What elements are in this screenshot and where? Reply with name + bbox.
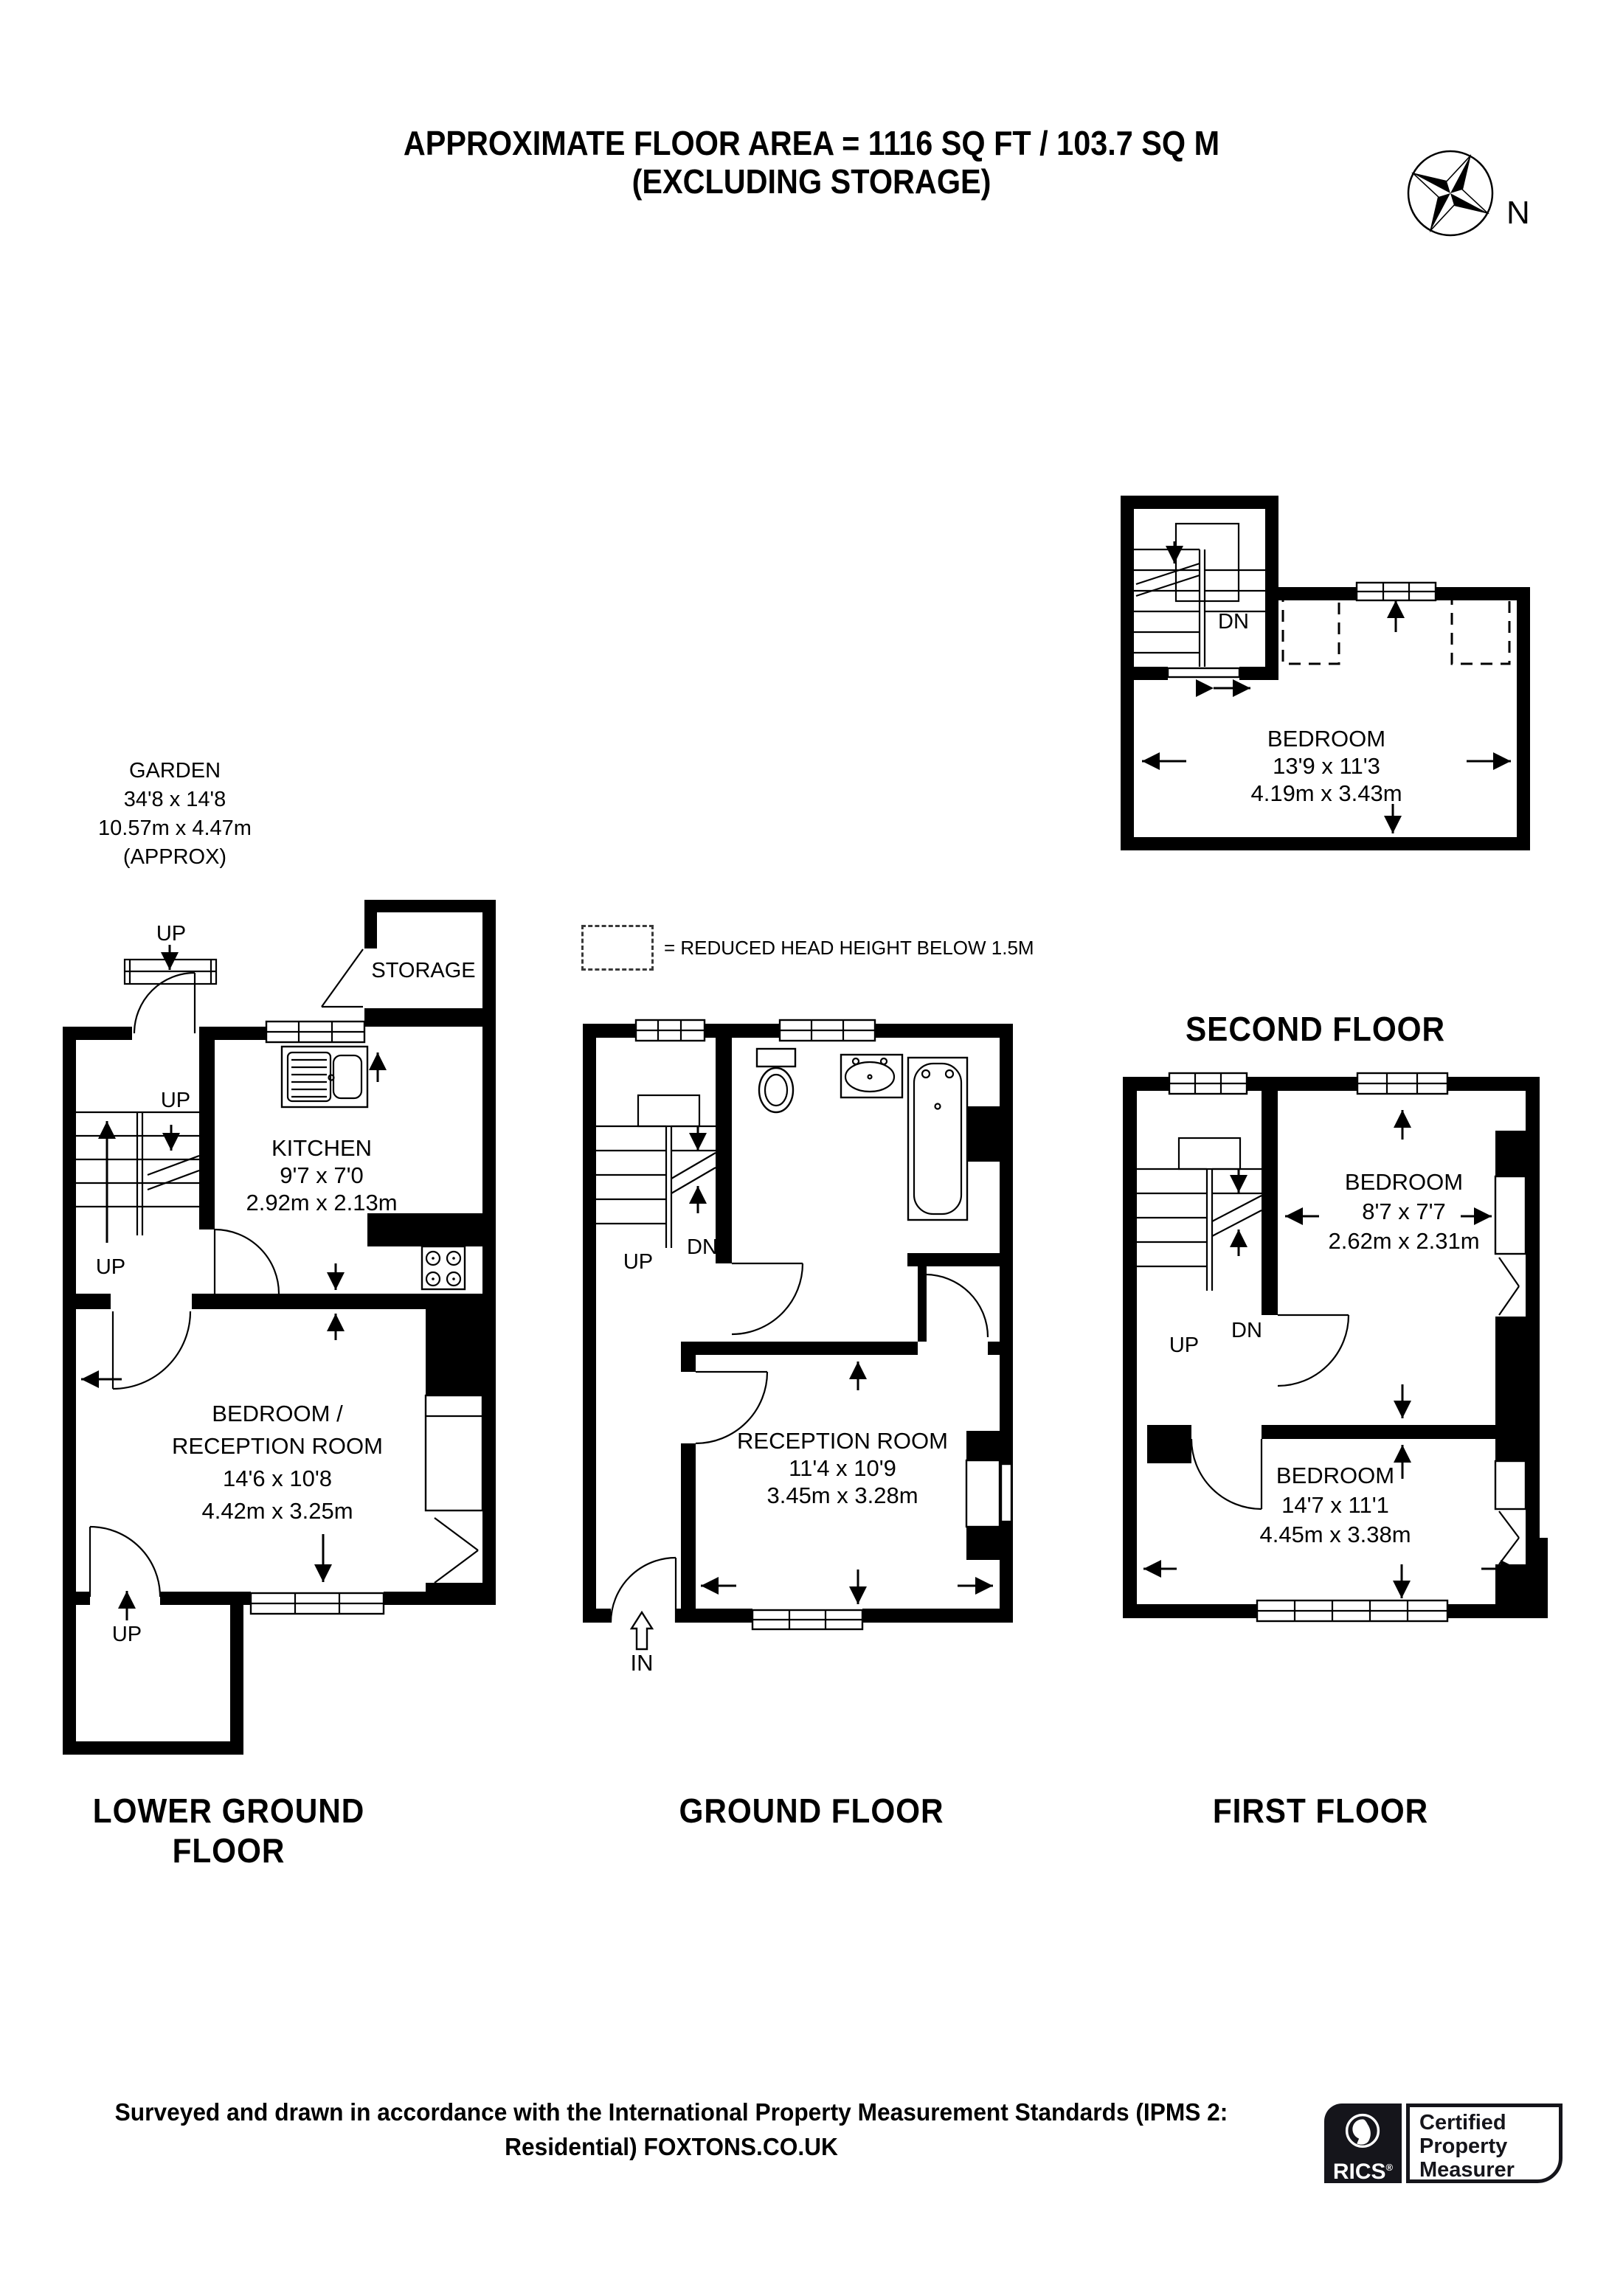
toilet	[757, 1049, 795, 1112]
rics-wordmark: RICS®	[1333, 2157, 1393, 2183]
first-floor-label: FIRST FLOOR	[1130, 1791, 1510, 1831]
room-name: BEDROOM	[1345, 1169, 1463, 1195]
room-dim-ft: 11'4 x 10'9	[789, 1455, 896, 1481]
bedroom-large-label: BEDROOM 14'7 x 11'1 4.45m x 3.38m	[1259, 1463, 1411, 1547]
room-dim-m: 3.45m x 3.28m	[766, 1482, 918, 1508]
room-dim-m: 4.45m x 3.38m	[1259, 1522, 1411, 1547]
inner-door	[925, 1274, 988, 1337]
stairs-up-down	[596, 1095, 716, 1248]
legend-text: = REDUCED HEAD HEIGHT BELOW 1.5M	[664, 937, 1034, 960]
bedroom-small-label: BEDROOM 8'7 x 7'7 2.62m x 2.31m	[1328, 1169, 1479, 1254]
front-door	[611, 1558, 676, 1623]
first-floor-plan: UP DN BEDROOM 8'7 x 7'7 2.62m x 2.31m BE…	[1114, 1066, 1593, 1811]
rics-cert-line2: Property	[1419, 2134, 1559, 2158]
entrance-in-label: IN	[631, 1650, 654, 1676]
reception-window	[752, 1610, 862, 1629]
rics-logo: RICS®	[1324, 2103, 1402, 2183]
built-in-closet	[426, 1395, 482, 1583]
garden-name: GARDEN	[42, 757, 308, 785]
compass-north-label: N	[1506, 195, 1530, 231]
stairs-up-label: UP	[623, 1250, 653, 1274]
bedroom-label: BEDROOM 13'9 x 11'3 4.19m x 3.43m	[1250, 726, 1402, 806]
rics-certification-badge: Certified Property Measurer	[1406, 2103, 1563, 2183]
rics-cert-line3: Measurer	[1419, 2158, 1559, 2182]
room-dim-m: 4.42m x 3.25m	[201, 1498, 353, 1524]
room-dim-ft: 14'7 x 11'1	[1281, 1492, 1389, 1518]
entrance-door	[134, 973, 195, 1033]
stairs-up-down	[1137, 1138, 1262, 1291]
entrance-in	[631, 1612, 652, 1649]
garden-label: GARDEN 34'8 x 14'8 10.57m x 4.47m (APPRO…	[42, 757, 308, 872]
room-dim-m: 4.19m x 3.43m	[1250, 780, 1402, 806]
room-name: KITCHEN	[271, 1135, 372, 1161]
excluding-storage-line: (EXCLUDING STORAGE)	[81, 162, 1542, 201]
stairs-dn-label: DN	[687, 1235, 718, 1259]
kitchen-label: KITCHEN 9'7 x 7'0 2.92m x 2.13m	[246, 1135, 397, 1215]
kitchen-door	[215, 1229, 279, 1294]
bedroom-reception-label: BEDROOM / RECEPTION ROOM 14'6 x 10'8 4.4…	[172, 1401, 383, 1524]
bedroom-small-window	[1357, 1073, 1447, 1094]
footer-note: Surveyed and drawn in accordance with th…	[69, 2095, 1273, 2164]
room-name-line2: RECEPTION ROOM	[172, 1433, 383, 1459]
bathtub	[908, 1058, 967, 1220]
entrance-up-label: UP	[156, 922, 186, 946]
hall-window	[636, 1020, 705, 1041]
reception-label: RECEPTION ROOM 11'4 x 10'9 3.45m x 3.28m	[737, 1428, 948, 1508]
stairs-dn-label: DN	[1218, 610, 1249, 634]
bedroom-large-door	[1191, 1439, 1262, 1509]
floor-area-line: APPROXIMATE FLOOR AREA = 1116 SQ FT / 10…	[81, 124, 1542, 162]
room-dim-ft: 13'9 x 11'3	[1273, 753, 1380, 779]
room-dim-ft: 14'6 x 10'8	[223, 1466, 332, 1491]
lower-ground-floor-label: LOWER GROUND FLOOR	[59, 1791, 398, 1870]
page-title: APPROXIMATE FLOOR AREA = 1116 SQ FT / 10…	[81, 124, 1542, 201]
garden-dim-ft: 34'8 x 14'8	[42, 785, 308, 814]
room-name-line1: BEDROOM /	[212, 1401, 343, 1426]
ground-floor-plan: UP DN	[568, 1018, 1055, 1811]
dashed-area-icon	[581, 925, 654, 971]
room-dim-ft: 8'7 x 7'7	[1362, 1199, 1446, 1224]
room-dim-m: 2.92m x 2.13m	[246, 1190, 397, 1215]
stairs-up	[76, 1112, 199, 1243]
room-name: BEDROOM	[1267, 726, 1385, 752]
bedroom-window	[251, 1593, 384, 1614]
stairs-down	[1134, 524, 1265, 677]
kitchen-hob	[422, 1246, 465, 1289]
footer-line1: Surveyed and drawn in accordance with th…	[69, 2095, 1273, 2129]
rics-lion-icon	[1324, 2103, 1402, 2155]
bathroom-door	[732, 1263, 803, 1334]
compass-rose-icon: N	[1394, 136, 1534, 262]
bathroom-window	[780, 1020, 875, 1041]
stairs-up-side-label: UP	[96, 1255, 125, 1279]
basin	[841, 1055, 902, 1097]
bedroom-large-window	[1257, 1600, 1447, 1621]
vault-up-label: UP	[112, 1623, 142, 1646]
vault-door	[90, 1527, 160, 1597]
storage-door	[322, 949, 363, 1007]
garden-note: (APPROX)	[42, 843, 308, 872]
ground-floor-label: GROUND FLOOR	[587, 1791, 1035, 1831]
room-name: RECEPTION ROOM	[737, 1428, 948, 1454]
kitchen-window	[266, 1022, 364, 1042]
storage-label: STORAGE	[371, 959, 475, 982]
lower-ground-floor-plan: UP STORAGE	[44, 896, 524, 1807]
reduced-head-height-legend: = REDUCED HEAD HEIGHT BELOW 1.5M	[581, 925, 1034, 971]
stairs-up-label: UP	[1169, 1333, 1199, 1357]
second-floor-label: SECOND FLOOR	[1124, 1009, 1508, 1049]
second-floor-plan: DN BEDROOM 13'9 x 11'3 4.19m x 3.43m	[1107, 481, 1549, 931]
room-dim-m: 2.62m x 2.31m	[1328, 1228, 1479, 1254]
kitchen-sink	[282, 1047, 367, 1107]
in-arrow-icon	[631, 1612, 652, 1649]
chimney-alcove	[966, 1460, 1011, 1527]
room-dim-ft: 9'7 x 7'0	[280, 1162, 364, 1188]
stairs-up-label: UP	[161, 1089, 190, 1112]
garden-dim-m: 10.57m x 4.47m	[42, 814, 308, 843]
bedroom-door	[113, 1311, 190, 1389]
hall-window	[1169, 1073, 1247, 1094]
room-name: BEDROOM	[1276, 1463, 1394, 1488]
window	[1357, 583, 1436, 600]
stairs-dn-label: DN	[1231, 1319, 1262, 1342]
rics-cert-line1: Certified	[1419, 2111, 1559, 2134]
bedroom-small-door	[1278, 1315, 1349, 1386]
footer-line2: Residential) FOXTONS.CO.UK	[69, 2129, 1273, 2164]
compass-star	[1394, 136, 1507, 250]
